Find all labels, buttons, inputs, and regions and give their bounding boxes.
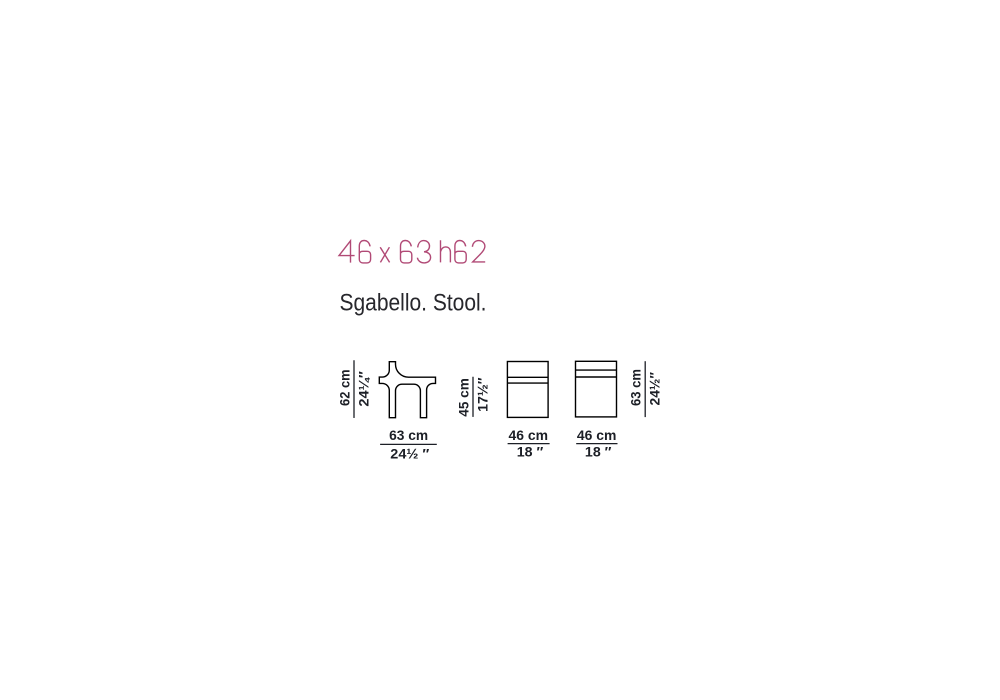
svg-text:18 ″: 18 ″ — [517, 445, 544, 460]
svg-text:24½″: 24½″ — [648, 372, 663, 406]
svg-text:63 cm: 63 cm — [389, 428, 428, 443]
svg-text:17½″: 17½″ — [475, 377, 490, 412]
svg-text:62 cm: 62 cm — [338, 369, 353, 406]
svg-text:63 cm: 63 cm — [629, 369, 644, 406]
svg-text:18 ″: 18 ″ — [585, 445, 612, 460]
svg-text:46 cm: 46 cm — [509, 428, 549, 443]
svg-text:46 cm: 46 cm — [577, 428, 617, 443]
svg-text:24¼″: 24¼″ — [356, 371, 371, 407]
svg-text:24½ ″: 24½ ″ — [390, 446, 429, 461]
svg-text:45 cm: 45 cm — [457, 378, 472, 417]
svg-text:Sgabello. Stool.: Sgabello. Stool. — [340, 289, 487, 316]
